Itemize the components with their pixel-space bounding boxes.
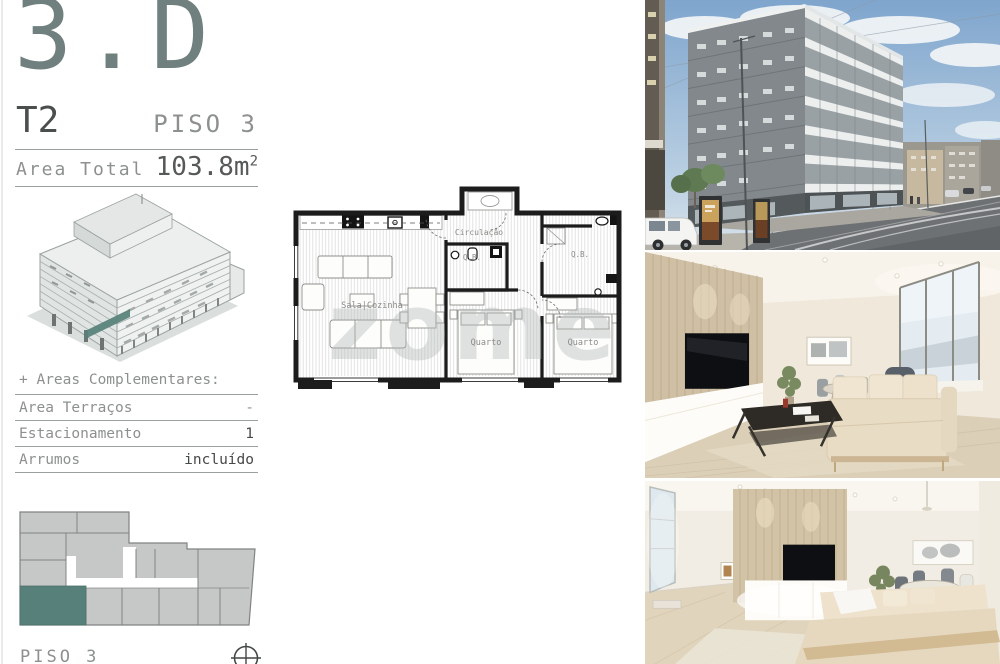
divider	[15, 186, 258, 187]
property-sheet: 3.D T2 PISO 3 Area Total 103.8m2	[0, 0, 1000, 664]
building-isometric-drawing	[22, 188, 248, 370]
sheet-edge-line	[1, 0, 3, 664]
compass-icon	[230, 641, 262, 664]
room-label-sala: Sala|Cozinha	[341, 301, 402, 311]
highlighted-unit	[20, 586, 86, 625]
floor-label: PISO 3	[153, 110, 258, 138]
floorplan-drawing: zome Circulação Q.B. Q.B. Sala|Cozinha Q…	[292, 184, 624, 394]
room-label-quarto1: Quarto	[471, 338, 502, 348]
photo-living-room-2	[645, 481, 1000, 664]
table-row: Area Terraços -	[15, 395, 258, 421]
divider	[15, 149, 258, 150]
typology-row: T2 PISO 3	[16, 100, 258, 141]
area-total-value: 103.8m2	[156, 152, 258, 182]
room-label-qb1: Q.B.	[463, 253, 481, 262]
complementares-title: + Areas Complementares:	[15, 372, 258, 395]
room-label-circulacao: Circulação	[455, 228, 503, 237]
area-total-row: Area Total 103.8m2	[16, 152, 258, 182]
area-total-label: Area Total	[16, 159, 144, 180]
table-row: Arrumos incluído	[15, 447, 258, 473]
keyplan-caption: PISO 3	[20, 647, 99, 664]
keyplan-drawing	[15, 503, 267, 638]
table-row: Estacionamento 1	[15, 421, 258, 447]
typology-label: T2	[16, 100, 59, 141]
watermark: zome	[328, 274, 619, 381]
room-label-quarto2: Quarto	[568, 338, 599, 348]
photo-living-room-1	[645, 252, 1000, 478]
photo-building-exterior	[645, 0, 1000, 250]
complementares-table: + Areas Complementares: Area Terraços - …	[15, 372, 258, 473]
page-title: 3.D	[14, 0, 219, 91]
room-label-qb2: Q.B.	[571, 250, 589, 259]
